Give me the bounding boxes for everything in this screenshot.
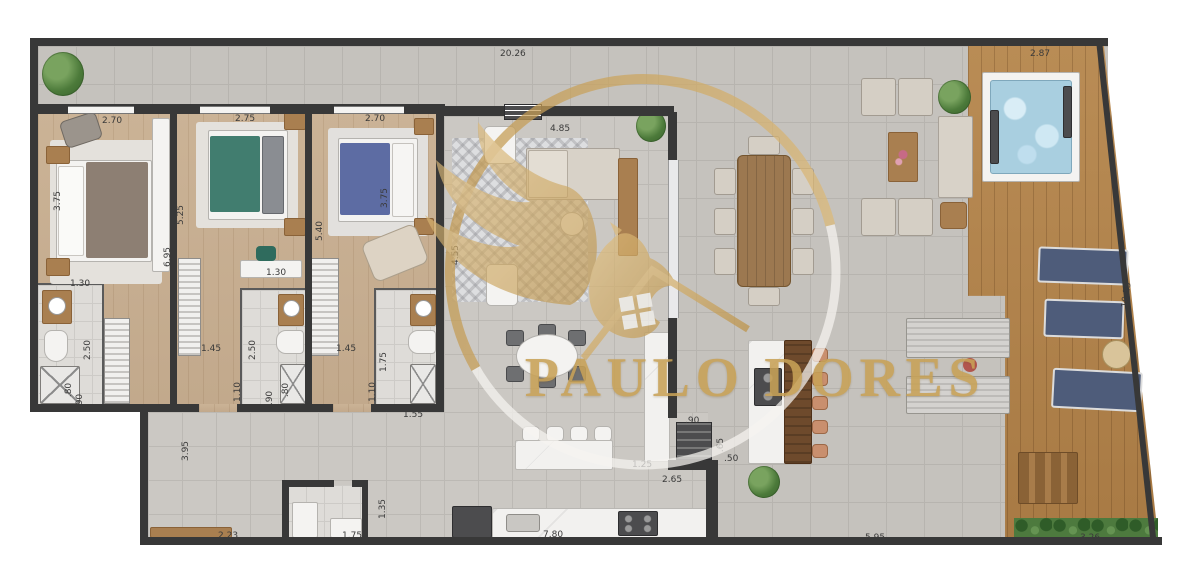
dimension-label: 2.75 (235, 114, 255, 124)
dimension-label: 6.95 (163, 247, 173, 267)
dimension-label: 3.75 (380, 188, 390, 208)
dimension-label: .50 (724, 454, 738, 464)
dimension-label: 5.40 (315, 221, 325, 241)
dimension-label: .90 (75, 394, 85, 408)
dimension-label: 5.25 (176, 205, 186, 225)
dimension-label: 5.95 (865, 533, 885, 543)
dimension-label: .90 (685, 416, 699, 426)
dimension-label: .65 (716, 438, 726, 452)
dimension-label: .80 (281, 383, 291, 397)
dimension-label: .80 (64, 383, 74, 397)
dimension-label: 1.35 (378, 499, 388, 519)
dimension-label: 3.26 (1080, 533, 1100, 543)
dimension-label: 10.15 (1120, 282, 1133, 309)
dimension-label: 1.45 (336, 344, 356, 354)
dimension-label: 1.45 (201, 344, 221, 354)
dimension-label: 1.75 (379, 352, 389, 372)
dimension-label: 2.70 (102, 116, 122, 126)
dimension-label: .90 (265, 391, 275, 405)
dimension-label: 2.50 (83, 340, 93, 360)
dimension-label: 4.55 (451, 245, 461, 265)
dimension-label: 2.50 (248, 340, 258, 360)
dimension-label: 2.23 (218, 531, 238, 541)
dimension-label: 1.55 (403, 410, 423, 420)
floor-plan: 20.262.872.702.752.704.853.755.256.955.4… (0, 0, 1200, 576)
dimension-label: 1.30 (266, 268, 286, 278)
dimension-label: 1.10 (233, 382, 243, 402)
dimension-label: 2.87 (1030, 49, 1050, 59)
dimension-label: 7.80 (543, 530, 563, 540)
dimension-labels-layer: 20.262.872.702.752.704.853.755.256.955.4… (0, 0, 1200, 576)
dimension-label: 2.65 (662, 475, 682, 485)
dimension-label: 1.30 (70, 279, 90, 289)
dimension-label: 1.10 (368, 382, 378, 402)
dimension-label: 20.26 (500, 49, 526, 59)
dimension-label: 3.75 (53, 191, 63, 211)
dimension-label: 2.70 (365, 114, 385, 124)
dimension-label: 1.75 (342, 531, 362, 541)
dimension-label: 3.95 (181, 441, 191, 461)
dimension-label: 1.25 (632, 460, 652, 470)
dimension-label: 4.85 (550, 124, 570, 134)
